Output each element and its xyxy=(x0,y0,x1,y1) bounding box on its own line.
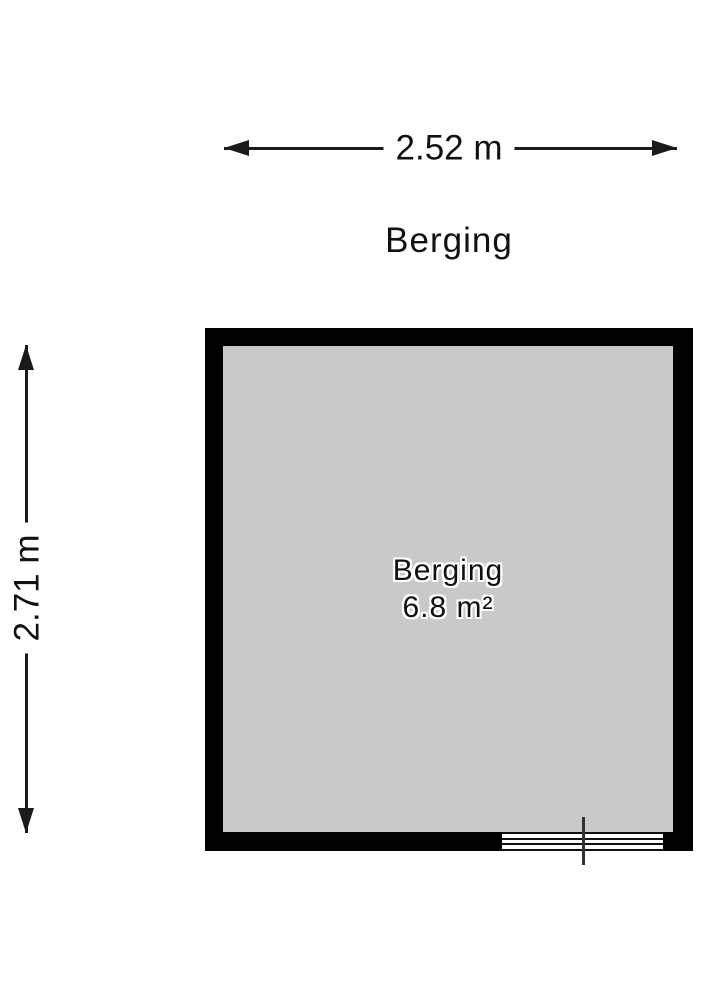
arrow-down-icon xyxy=(18,808,34,833)
window-center-tick xyxy=(582,817,585,865)
height-dimension-label: 2.71 m xyxy=(8,523,47,654)
width-dimension-label: 2.52 m xyxy=(384,129,515,168)
arrow-left-icon xyxy=(224,140,249,156)
arrow-right-icon xyxy=(652,140,677,156)
room-area: 6.8 m² xyxy=(402,589,493,626)
room-name: Berging xyxy=(393,552,503,589)
room-label: Berging 6.8 m² xyxy=(223,346,673,832)
arrow-up-icon xyxy=(18,345,34,370)
plan-title: Berging xyxy=(385,222,513,260)
floor-plan-canvas: 2.52 m Berging 2.71 m Berging 6.8 m² xyxy=(0,0,707,1000)
room-walls: Berging 6.8 m² xyxy=(205,328,693,851)
